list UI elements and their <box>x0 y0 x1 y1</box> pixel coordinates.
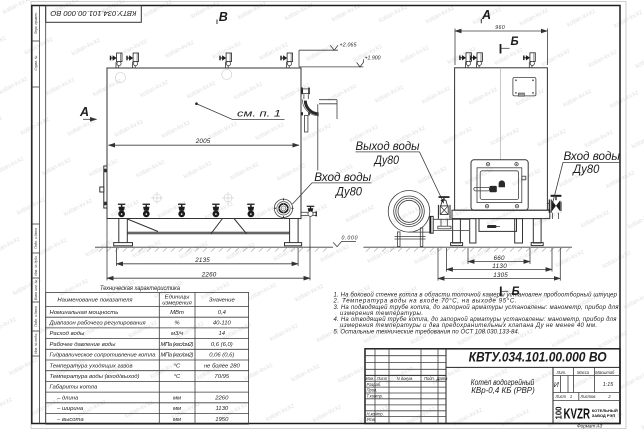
svg-text:1950: 1950 <box>215 417 229 423</box>
svg-text:мм: мм <box>173 406 181 412</box>
svg-text:960: 960 <box>495 25 505 31</box>
svg-text:70/95: 70/95 <box>214 374 229 380</box>
svg-text:Дата: Дата <box>436 376 449 381</box>
svg-text:1: 1 <box>570 394 572 399</box>
svg-text:МПа (кгс/см2): МПа (кгс/см2) <box>161 353 194 359</box>
svg-text:– длина: – длина <box>56 395 79 401</box>
svg-text:Ду80: Ду80 <box>334 184 362 198</box>
svg-text:м3/ч: м3/ч <box>171 331 183 337</box>
svg-text:Утв.: Утв. <box>367 417 376 422</box>
svg-text:Номинальная мощность: Номинальная мощность <box>50 310 119 316</box>
svg-text:Гидравлическое сопротивление к: Гидравлическое сопротивление котла <box>50 353 157 359</box>
svg-text:Инв. № дубл.: Инв. № дубл. <box>34 255 38 275</box>
svg-text:1. На боковой стенке котла в: 1. На боковой стенке котла в области топ… <box>334 292 618 299</box>
svg-text:N докум.: N докум. <box>397 376 414 381</box>
svg-text:Температура воды (вход/выход): Температура воды (вход/выход) <box>50 374 140 380</box>
svg-text:см. п. 1: см. п. 1 <box>237 109 281 119</box>
svg-text:– высота: – высота <box>56 417 84 423</box>
svg-text:МПа (кгс/см2): МПа (кгс/см2) <box>161 342 194 348</box>
svg-text:100: 100 <box>555 406 564 420</box>
svg-text:0,4: 0,4 <box>218 310 227 316</box>
svg-text:KVZR: KVZR <box>564 407 591 423</box>
svg-text:измерения температуры и два пр: измерения температуры и два предохраните… <box>340 323 597 329</box>
svg-text:КВТУ.034.101.00.000 ВО: КВТУ.034.101.00.000 ВО <box>469 349 607 365</box>
svg-text:Лит.: Лит. <box>556 370 567 375</box>
svg-text:Формат А3: Формат А3 <box>577 424 603 429</box>
svg-text:Наименование показателя: Наименование показателя <box>57 298 133 304</box>
svg-text:2005: 2005 <box>195 138 211 145</box>
svg-text:Справ. №: Справ. № <box>34 55 38 70</box>
svg-text:Пров.: Пров. <box>367 388 378 393</box>
svg-text:Масса: Масса <box>577 370 590 375</box>
svg-text:Лист: Лист <box>555 394 567 399</box>
svg-text:Разраб.: Разраб. <box>367 382 382 387</box>
svg-text:Подп. и дата: Подп. и дата <box>34 228 38 249</box>
svg-text:Н.контр.: Н.контр. <box>367 411 384 416</box>
svg-text:МВт: МВт <box>170 310 184 316</box>
svg-text:4. На отводящей трубе котла,: 4. На отводящей трубе котла, до запорной… <box>334 316 618 323</box>
svg-text:+2.065: +2.065 <box>340 42 357 48</box>
svg-text:Вход воды: Вход воды <box>564 149 621 163</box>
svg-text:2135: 2135 <box>194 257 210 264</box>
svg-text:Масштаб: Масштаб <box>595 370 615 375</box>
svg-text:Б: Б <box>511 36 519 48</box>
svg-text:2260: 2260 <box>201 272 217 279</box>
svg-text:КВТУ.034.101.00.000 ВО: КВТУ.034.101.00.000 ВО <box>50 9 136 18</box>
svg-text:660: 660 <box>494 255 505 262</box>
svg-text:В: В <box>219 10 228 24</box>
svg-text:+1.900: +1.900 <box>365 56 381 62</box>
svg-text:Техническая характеристика: Техническая характеристика <box>100 285 180 292</box>
svg-text:Температура уходящих газов: Температура уходящих газов <box>50 363 133 369</box>
svg-text:Значение: Значение <box>209 298 236 304</box>
svg-text:измерения температуры.: измерения температуры. <box>340 311 423 317</box>
svg-text:Рабочее давление воды: Рабочее давление воды <box>50 342 117 348</box>
svg-text:Подп. и дата: Подп. и дата <box>34 306 38 327</box>
svg-text:1305: 1305 <box>493 272 508 279</box>
svg-text:Вход воды: Вход воды <box>314 170 371 184</box>
svg-text:ЗАВОД РЭП: ЗАВОД РЭП <box>592 413 616 418</box>
svg-text:Перв. примен.: Перв. примен. <box>34 12 38 34</box>
svg-text:3. На подводящей трубе котла,: 3. На подводящей трубе котла, до запорно… <box>334 304 620 311</box>
svg-text:А: А <box>481 8 491 22</box>
svg-text:измерения: измерения <box>162 301 192 307</box>
svg-text:2. Температура воды на входе: 2. Температура воды на входе 70°С, на вы… <box>333 299 517 305</box>
svg-text:Взам. инв. №: Взам. инв. № <box>34 279 38 300</box>
svg-text:мм: мм <box>173 417 181 423</box>
svg-text:0,06 (0,6): 0,06 (0,6) <box>209 353 234 359</box>
svg-text:не более 280: не более 280 <box>204 363 241 369</box>
svg-text:°С: °С <box>174 363 181 369</box>
svg-text:мм: мм <box>173 395 181 401</box>
svg-text:Лист: Лист <box>376 376 388 381</box>
svg-text:%: % <box>174 321 179 327</box>
svg-text:Изм.: Изм. <box>366 376 375 381</box>
svg-text:0.000: 0.000 <box>342 236 358 242</box>
svg-text:Диапазон рабочего регулировани: Диапазон рабочего регулирования <box>49 321 147 327</box>
svg-text:40-110: 40-110 <box>213 321 232 327</box>
svg-text:0,6 (6,0): 0,6 (6,0) <box>211 342 233 348</box>
svg-text:1130: 1130 <box>492 263 507 270</box>
svg-text:– ширина: – ширина <box>56 406 84 412</box>
svg-text:КВр-0,4 КБ (РВР): КВр-0,4 КБ (РВР) <box>471 385 535 395</box>
svg-text:Габариты котла: Габариты котла <box>50 385 98 391</box>
svg-text:Ду80: Ду80 <box>373 153 400 167</box>
svg-text:°С: °С <box>174 374 181 380</box>
svg-text:Ду80: Ду80 <box>571 162 599 176</box>
svg-text:Т.контр.: Т.контр. <box>367 394 384 399</box>
svg-text:Подп.: Подп. <box>424 376 435 381</box>
svg-text:14: 14 <box>219 331 226 337</box>
svg-text:5. Остальные технические треб: 5. Остальные технические требования по О… <box>334 329 520 335</box>
svg-text:Расход воды: Расход воды <box>50 331 86 337</box>
svg-text:Выход воды: Выход воды <box>356 139 420 153</box>
svg-text:2260: 2260 <box>214 395 229 401</box>
svg-text:Листов: Листов <box>580 394 597 399</box>
svg-text:Инв. № подл.: Инв. № подл. <box>34 333 38 354</box>
svg-text:1130: 1130 <box>215 406 228 412</box>
svg-text:1:15: 1:15 <box>603 382 614 388</box>
svg-text:А: А <box>79 105 89 119</box>
